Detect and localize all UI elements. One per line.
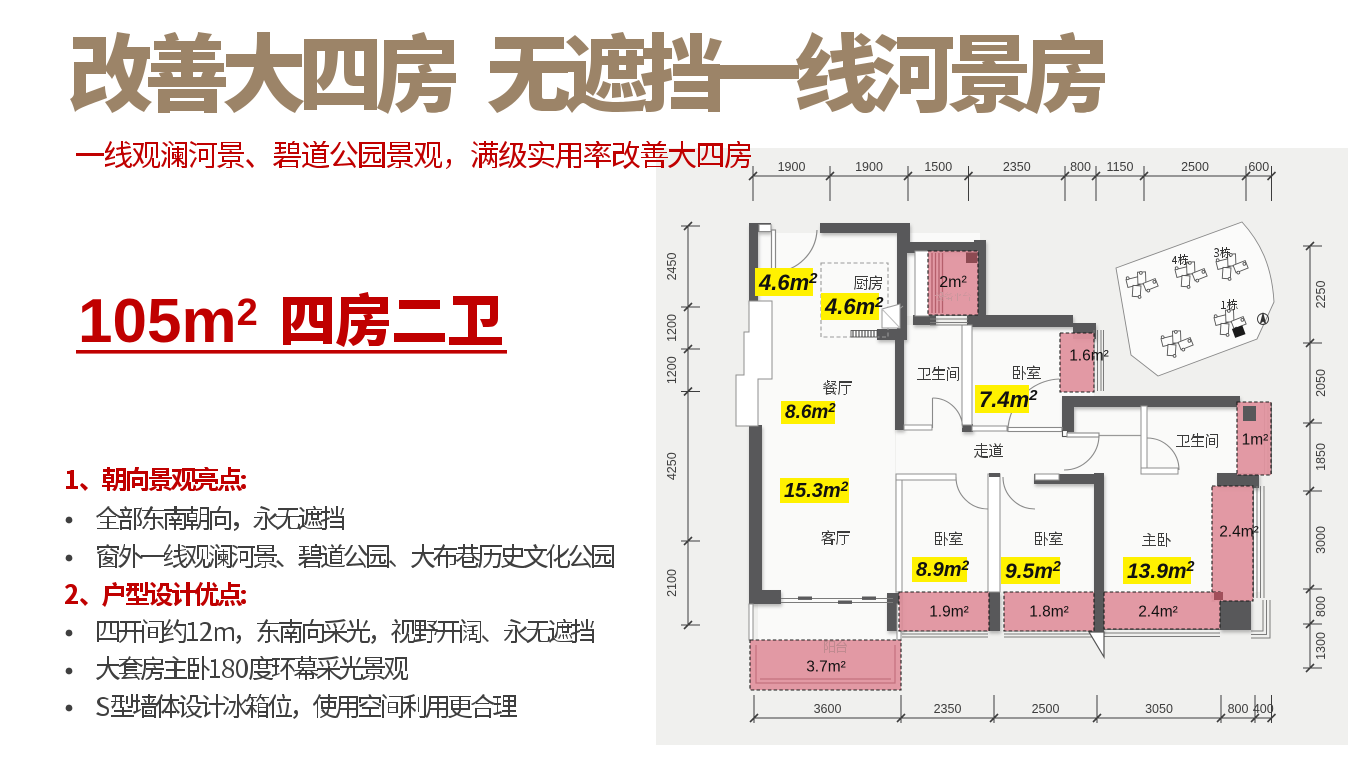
svg-text:15.3m2: 15.3m2 xyxy=(784,479,849,502)
svg-text:1850: 1850 xyxy=(1314,443,1328,471)
svg-text:1.9m²: 1.9m² xyxy=(929,604,969,621)
svg-text:9.5m2: 9.5m2 xyxy=(1005,559,1061,583)
svg-text:2500: 2500 xyxy=(1032,702,1060,716)
svg-text:2450: 2450 xyxy=(665,253,679,281)
svg-text:600: 600 xyxy=(1248,160,1269,174)
svg-text:1900: 1900 xyxy=(778,160,806,174)
svg-text:4250: 4250 xyxy=(665,452,679,480)
svg-text:800: 800 xyxy=(1228,702,1249,716)
svg-text:1500: 1500 xyxy=(924,160,952,174)
svg-text:13.9m2: 13.9m2 xyxy=(1127,559,1195,583)
svg-text:1150: 1150 xyxy=(1107,160,1134,174)
svg-text:105m2: 105m2 xyxy=(78,287,258,356)
svg-text:1300: 1300 xyxy=(1314,632,1328,660)
svg-text:1200: 1200 xyxy=(665,356,679,384)
svg-text:1.8m²: 1.8m² xyxy=(1029,604,1069,621)
svg-text:3600: 3600 xyxy=(814,702,842,716)
svg-text:400: 400 xyxy=(1253,702,1274,716)
svg-text:2250: 2250 xyxy=(1314,281,1328,309)
svg-text:4.6m2: 4.6m2 xyxy=(758,270,818,295)
svg-text:2350: 2350 xyxy=(934,702,962,716)
svg-text:2350: 2350 xyxy=(1003,160,1031,174)
svg-text:3000: 3000 xyxy=(1314,526,1328,554)
svg-text:1m²: 1m² xyxy=(1242,432,1269,449)
svg-text:2.4m²: 2.4m² xyxy=(1138,604,1178,621)
svg-text:1.6m²: 1.6m² xyxy=(1069,348,1109,365)
svg-text:800: 800 xyxy=(1070,160,1091,174)
svg-text:2m²: 2m² xyxy=(939,274,967,291)
svg-text:3050: 3050 xyxy=(1145,702,1173,716)
svg-text:2100: 2100 xyxy=(665,569,679,597)
svg-text:2050: 2050 xyxy=(1314,369,1328,397)
svg-text:8.9m2: 8.9m2 xyxy=(916,558,970,581)
svg-text:3.7m²: 3.7m² xyxy=(806,659,846,676)
svg-text:2500: 2500 xyxy=(1181,160,1209,174)
svg-text:1900: 1900 xyxy=(855,160,883,174)
svg-text:2.4m²: 2.4m² xyxy=(1219,524,1259,541)
svg-text:4.6m2: 4.6m2 xyxy=(824,294,884,319)
svg-text:800: 800 xyxy=(1314,596,1328,617)
svg-text:1200: 1200 xyxy=(665,314,679,342)
